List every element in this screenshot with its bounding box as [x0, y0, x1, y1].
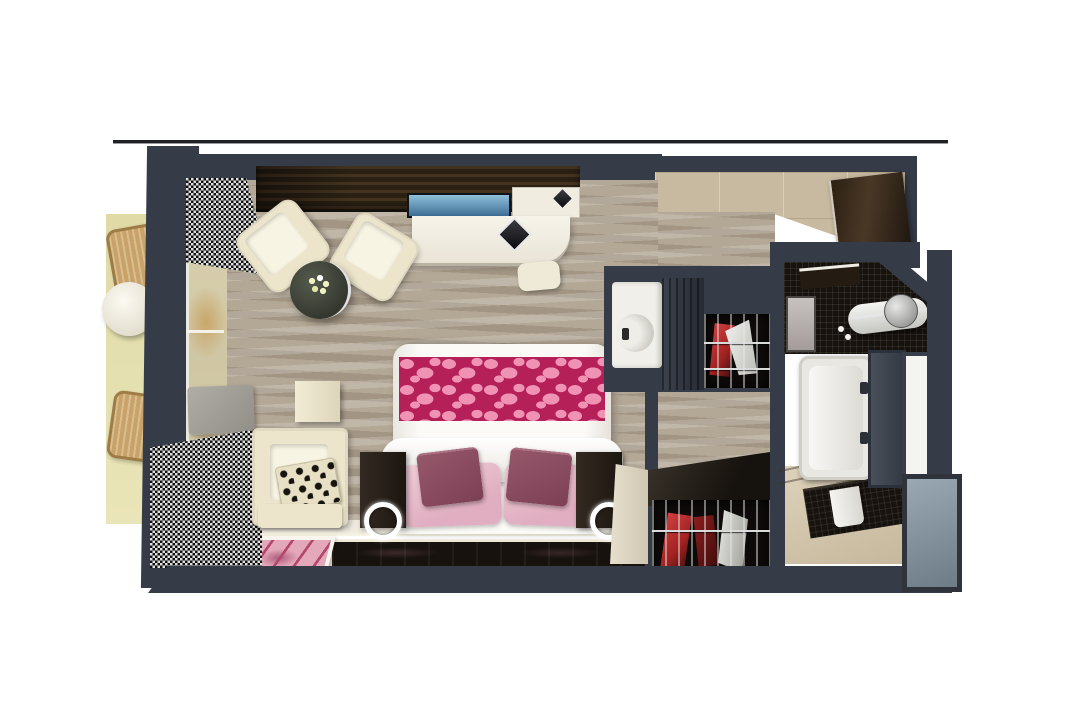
glass-door-hinge [860, 432, 868, 444]
console-side-panel [610, 464, 648, 564]
window-mullion [186, 330, 224, 333]
bed-runner [399, 357, 605, 421]
window-bench [187, 385, 255, 435]
bathroom-wall [770, 248, 785, 592]
flower-bouquet [305, 272, 333, 300]
wardrobe-cabinet [662, 278, 704, 390]
fridge-handle [622, 328, 629, 340]
sheer-curtain [150, 428, 262, 568]
glass-door-hinge [860, 382, 868, 394]
bathroom-mirror [786, 296, 816, 352]
bathtub-basin [809, 366, 863, 470]
desk-stool [517, 260, 561, 292]
steel-panel [902, 474, 962, 592]
bottom-wall [148, 566, 952, 593]
ring-lamp [364, 502, 402, 540]
tv-cabinet [512, 187, 580, 218]
sink-knob [845, 334, 851, 340]
writing-desk [412, 216, 570, 263]
minibar-fridge [612, 282, 662, 368]
deck-edge-line [113, 140, 948, 144]
top-wall-entry [655, 156, 917, 172]
faucet-icon [884, 294, 918, 328]
accent-pillow [505, 447, 572, 507]
shower-glass-panel [868, 350, 906, 488]
bathtub [799, 356, 873, 480]
wall-shelf [295, 381, 340, 422]
suite-floor-plan [0, 0, 1077, 718]
towel [829, 486, 865, 528]
accent-pillow [416, 446, 484, 507]
tv-screen [407, 193, 511, 218]
open-closet [704, 314, 770, 388]
hanger-stems [704, 314, 770, 388]
sink-knob [838, 326, 844, 332]
ottoman [258, 504, 342, 528]
